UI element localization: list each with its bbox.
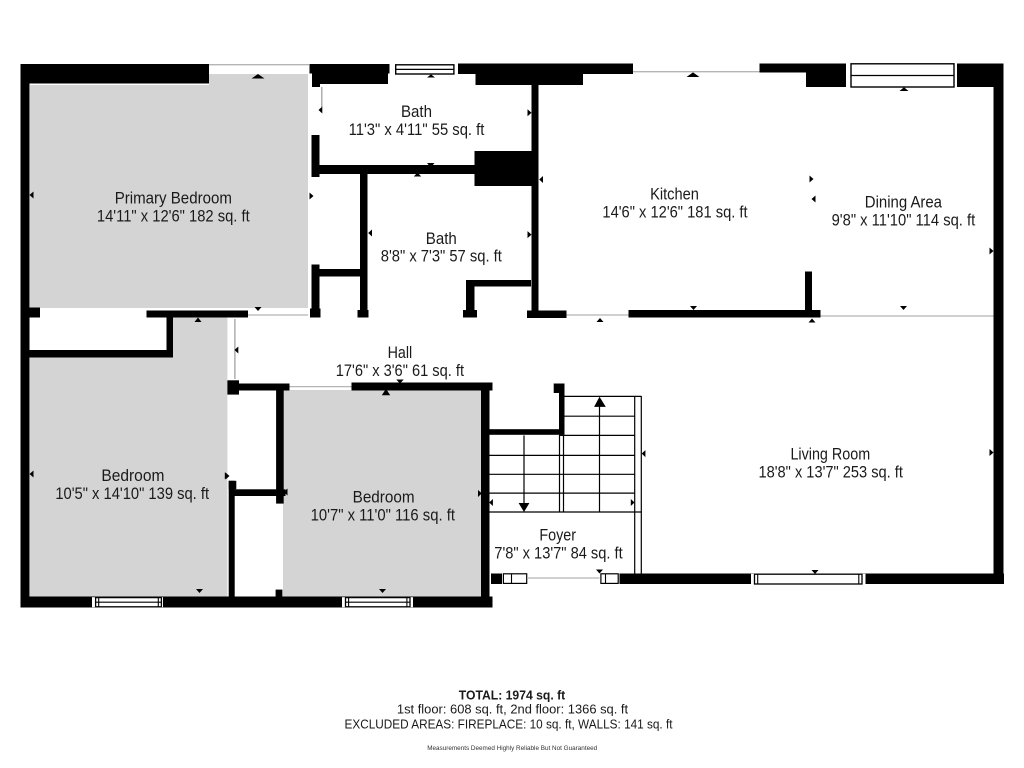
svg-text:Foyer: Foyer [539, 527, 576, 545]
svg-text:18'8" x 13'7" 253 sq. ft: 18'8" x 13'7" 253 sq. ft [759, 464, 904, 482]
svg-text:Bedroom: Bedroom [353, 488, 415, 506]
svg-text:14'11" x 12'6" 182 sq. ft: 14'11" x 12'6" 182 sq. ft [97, 208, 250, 226]
svg-text:10'7" x 11'0" 116 sq. ft: 10'7" x 11'0" 116 sq. ft [311, 506, 456, 524]
svg-text:8'8" x 7'3" 57 sq. ft: 8'8" x 7'3" 57 sq. ft [381, 248, 502, 266]
svg-text:TOTAL: 1974 sq. ft: TOTAL: 1974 sq. ft [459, 689, 566, 703]
svg-text:17'6" x 3'6" 61 sq. ft: 17'6" x 3'6" 61 sq. ft [336, 362, 465, 380]
svg-text:Dining Area: Dining Area [865, 194, 943, 212]
svg-text:Hall: Hall [388, 344, 413, 362]
svg-text:Bath: Bath [426, 230, 457, 248]
svg-text:Bath: Bath [401, 103, 432, 121]
svg-text:7'8" x 13'7" 84 sq. ft: 7'8" x 13'7" 84 sq. ft [494, 545, 623, 563]
svg-text:11'3" x 4'11" 55 sq. ft: 11'3" x 4'11" 55 sq. ft [349, 121, 485, 139]
svg-text:14'6" x 12'6" 181 sq. ft: 14'6" x 12'6" 181 sq. ft [602, 203, 748, 221]
svg-text:Kitchen: Kitchen [650, 185, 699, 203]
svg-text:9'8" x 11'10" 114 sq. ft: 9'8" x 11'10" 114 sq. ft [832, 212, 976, 230]
svg-text:Primary Bedroom: Primary Bedroom [115, 190, 232, 208]
svg-text:Measurements Deemed Highly Rel: Measurements Deemed Highly Reliable But … [427, 745, 597, 752]
svg-text:Bedroom: Bedroom [101, 467, 164, 485]
svg-text:10'5" x 14'10" 139 sq. ft: 10'5" x 14'10" 139 sq. ft [55, 485, 209, 503]
svg-text:EXCLUDED AREAS: FIREPLACE: 10: EXCLUDED AREAS: FIREPLACE: 10 sq. ft, WA… [345, 718, 673, 732]
svg-text:1st floor: 608 sq. ft, 2nd flo: 1st floor: 608 sq. ft, 2nd floor: 1366 s… [397, 703, 629, 717]
svg-text:Living Room: Living Room [790, 446, 870, 464]
